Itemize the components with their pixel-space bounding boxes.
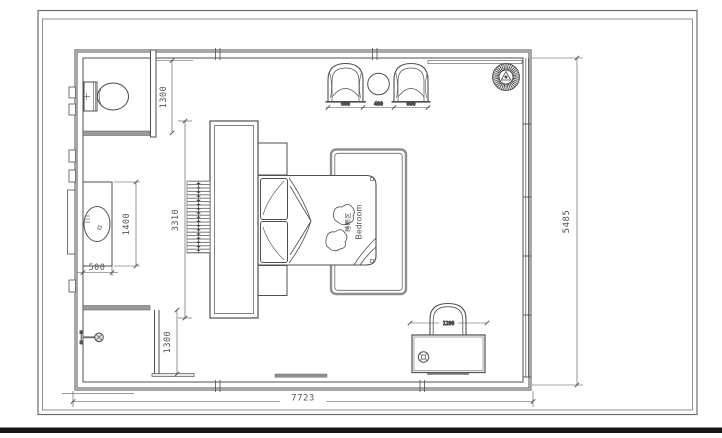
dim-overall-height: 5485: [532, 58, 583, 385]
floor-plan-canvas: 1300 1400 500: [0, 0, 722, 438]
shower-room: 1300: [80, 306, 195, 377]
pillow-bottom: [261, 222, 288, 263]
wc-threshold: [83, 131, 150, 136]
dim-text-600-left: 600: [341, 102, 350, 108]
headboard-wall: 3310: [171, 121, 258, 318]
dim-vanity-length: 1400: [114, 182, 140, 266]
floor-plan-drawing: 1300 1400 500: [0, 0, 722, 438]
wc-partition: [151, 50, 157, 137]
vanity: 1400 500: [77, 182, 140, 276]
window-right: [523, 58, 531, 377]
nightstand-bottom: [258, 266, 287, 296]
dim-text-1400: 1400: [122, 213, 132, 235]
toilet-icon: [84, 82, 129, 111]
dim-text-7723: 7723: [291, 394, 315, 404]
dim-text-5485: 5485: [562, 210, 572, 234]
armchair-right: [392, 64, 431, 102]
side-table: [368, 73, 390, 95]
bottom-edge-bar: [0, 428, 722, 434]
vanity-counter: [83, 182, 112, 266]
bed-label-zh: 睡眠区: [344, 212, 352, 232]
dim-desk: 1200: [410, 319, 487, 327]
bed-label-en: Bedroom: [355, 204, 364, 239]
dim-text-1200: 1200: [443, 321, 455, 327]
dim-text-shower-1300: 1300: [163, 331, 173, 353]
pillow-top: [261, 179, 288, 220]
armchair-left: [326, 64, 366, 102]
dim-text-600-right: 600: [406, 102, 415, 108]
dim-text-3310: 3310: [171, 209, 181, 231]
shower-partition: [152, 310, 194, 377]
bed: 睡眠区 Bedroom: [258, 176, 376, 266]
dim-shower-depth: 1300: [163, 310, 177, 374]
shower-threshold: [83, 306, 150, 311]
wc-room: 1300: [83, 50, 193, 137]
desk: [412, 335, 485, 374]
dim-overall-width: 7723: [73, 391, 533, 407]
dim-text-500: 500: [89, 263, 106, 273]
dim-text-400: 400: [374, 102, 383, 108]
pilasters: [68, 87, 76, 292]
ledge: [428, 61, 522, 64]
nightstand-top: [258, 143, 287, 175]
desk-set: 1200: [410, 304, 487, 374]
dim-text-wc-1300: 1300: [159, 86, 169, 108]
door-threshold: [275, 374, 327, 377]
dim-wc-depth: 1300: [156, 61, 193, 134]
radiator-hatch: [187, 181, 210, 253]
lounge-set: 600 400 600: [326, 64, 431, 108]
ceiling-fan-icon: [493, 64, 520, 91]
dim-lounge: 600 400 600: [326, 102, 430, 108]
